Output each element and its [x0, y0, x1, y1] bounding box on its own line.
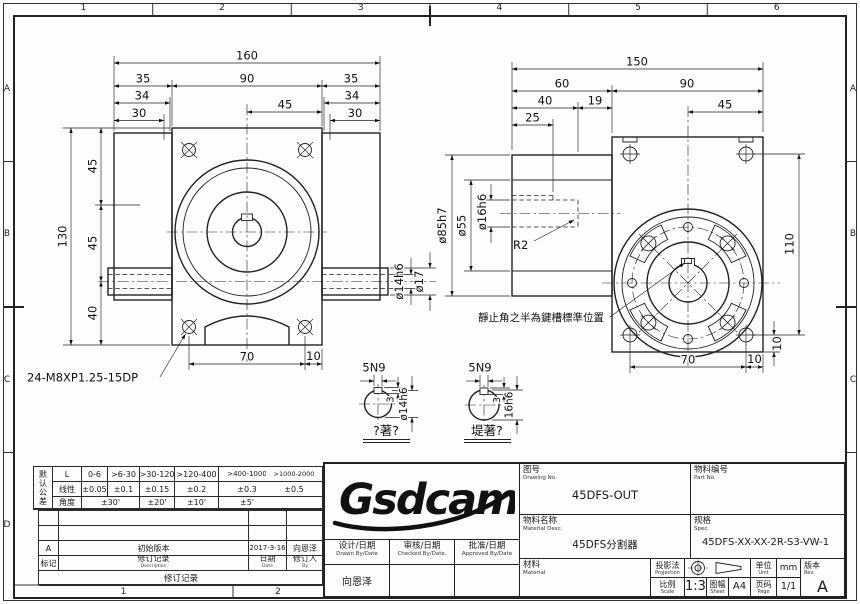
tol-h-4: >120-400 [175, 467, 219, 482]
rev-h-desc: 修订记录 Description [59, 556, 249, 571]
dim-60: 60 [555, 77, 570, 91]
spec-cell: 规格 Spec. 45DFS-XX-XX-2R-S3-VW-1 [691, 515, 844, 558]
material-cell: 材料 Material [520, 559, 651, 596]
revision-title: 修订记录 [39, 571, 324, 586]
dim-34l: 34 [135, 89, 150, 103]
approved-by-value [455, 565, 519, 596]
dim-30l: 30 [132, 106, 147, 120]
dim-30r: 30 [348, 106, 363, 120]
page-value: 1/1 [777, 578, 801, 597]
fillet-r2: R2 [513, 238, 528, 252]
zone-top-4: 4 [430, 1, 569, 15]
zone-strip-top: 1 2 3 4 5 6 [14, 1, 846, 15]
revision-table: A 初始版本 2017-3-16 向恩泽 标记 修订记录 Description… [38, 510, 323, 585]
dim-150: 150 [626, 55, 648, 69]
detail-input-shaft: 5N9 3 ø14h6 ?著? [359, 361, 418, 443]
tol-ang-3: ±10' [175, 497, 219, 509]
dim-110: 110 [783, 233, 797, 255]
dim-35r: 35 [344, 72, 359, 86]
sheet-label-cell: 图幅 Sheet [707, 578, 729, 597]
sheet-value: A4 [729, 578, 751, 597]
zone-strip-left: A B C D [1, 16, 13, 598]
dim-40s: 40 [538, 94, 553, 108]
tol-h-1: 0-6 [82, 467, 108, 482]
unit-label-cell: 单位 Unit [751, 559, 777, 578]
rev-entry-by: 向恩泽 [287, 541, 324, 556]
dim-25: 25 [525, 111, 540, 125]
rev-h-date: 日期 Date [249, 556, 287, 571]
thread-callout: 24-M8XP1.25-15DP [27, 371, 138, 385]
projection-symbol-icon [685, 559, 749, 577]
dim-19: 19 [588, 94, 603, 108]
tolerance-side-label: 默认公差 [34, 467, 53, 509]
dim-160: 160 [236, 49, 258, 63]
projection-label-cell: 投影法 Projection [651, 559, 685, 578]
dim-shaft-od: ø17 [412, 271, 426, 293]
dim-45b: 45 [86, 236, 100, 251]
dim-34r: 34 [345, 89, 360, 103]
dim-10-side: 10 [770, 336, 784, 351]
page-label-cell: 页码 Page [751, 578, 777, 597]
zone-top-2: 2 [153, 1, 292, 15]
dim-70: 70 [240, 350, 255, 364]
d2-depth: 3 [492, 397, 503, 403]
zone-right-d [847, 453, 859, 599]
dim-16h6: ø16h6 [475, 194, 489, 230]
tol-lin-3: ±0.15 [140, 482, 175, 497]
dim-55: ø55 [455, 215, 469, 237]
zone-top-5: 5 [569, 1, 708, 15]
zone-top-1: 1 [14, 1, 153, 15]
zone-top-3: 3 [291, 1, 430, 15]
rev-entry-desc: 初始版本 [59, 541, 249, 556]
zone-strip-bottom: 1 2 [14, 585, 323, 598]
tol-ang-5 [266, 497, 323, 509]
dim-90: 90 [240, 72, 255, 86]
zone-left-c: C [1, 307, 13, 453]
scale-label-cell: 比例 Scale [651, 578, 685, 597]
logo-text: Gsdcam [339, 475, 515, 525]
tol-h-2: >6-30 [108, 467, 140, 482]
dim-85h7: ø85h7 [435, 207, 449, 243]
dim-70s: 70 [681, 353, 696, 367]
zone-left-a: A [1, 16, 13, 162]
checked-by-value [390, 565, 455, 596]
drawing-no-cell: 图号 Drawing No. 45DFS-OUT [520, 464, 691, 514]
rev-cell: 版本 Rev. A [801, 559, 844, 596]
zone-strip-right: A B C [847, 16, 859, 598]
tol-h-6: >1000-2000 [266, 467, 323, 482]
rev-value: A [801, 577, 844, 596]
dim-130: 130 [56, 226, 70, 248]
dim-45s: 45 [718, 98, 733, 112]
zone-bottom-1: 1 [14, 585, 233, 598]
d1-bore: ø14h6 [398, 387, 410, 420]
side-view: 150 60 90 40 19 25 45 ø85h7 ø55 ø16h6 R2… [435, 55, 805, 374]
dim-35l: 35 [136, 72, 151, 86]
drawn-by-header: 设计/日期 Drawn By/Date [325, 540, 390, 564]
d1-key: 5N9 [362, 361, 385, 375]
d2-bore: 16h6 [504, 391, 516, 418]
scale-value: 1:3 [685, 578, 707, 597]
dim-45a: 45 [86, 159, 100, 174]
zone-left-d: D [1, 453, 13, 599]
spec-value: 45DFS-XX-XX-2R-S3-VW-1 [691, 537, 840, 548]
d1-depth: 3 [386, 396, 397, 402]
projection-symbol-cell [685, 559, 751, 578]
tol-ang-label: 角度 [53, 497, 82, 509]
title-block: Gsdcam 设计/日期 Drawn By/Date 审核/日期 Checked… [323, 462, 846, 598]
checked-by-header: 审核/日期 Checked By/Date. [390, 540, 455, 564]
zone-bottom-2: 2 [233, 585, 323, 598]
dim-10: 10 [306, 349, 321, 363]
tol-ang-1: ±30' [82, 497, 140, 509]
drawing-sheet: 160 35 90 35 34 34 45 30 30 130 45 45 40… [0, 0, 860, 604]
part-no-cell: 物料编号 Part No. [691, 464, 844, 514]
drawn-by-value: 向恩泽 [325, 565, 390, 596]
zone-top-6: 6 [707, 1, 846, 15]
dim-shaft-bore: ø14h6 [392, 263, 406, 299]
zone-left-b: B [1, 162, 13, 308]
tolerance-table-extra: >1000-2000 ±0.5 [266, 466, 323, 510]
rev-h-by: 修订人 By [287, 556, 324, 571]
material-desc-value: 45DFS分割器 [520, 537, 690, 552]
material-desc-cell: 物料名称 Material Desc. 45DFS分割器 [520, 515, 691, 558]
zone-right-c: C [847, 307, 859, 453]
tol-lin-4: ±0.2 [175, 482, 219, 497]
company-logo: Gsdcam [325, 464, 519, 540]
dim-90s: 90 [680, 77, 695, 91]
gsdcam-logo-graphic: Gsdcam [325, 464, 515, 536]
drawing-no-value: 45DFS-OUT [520, 488, 690, 502]
detail-output-bore: 5N9 3 16h6 堤著? [464, 361, 523, 443]
front-view: 160 35 90 35 34 34 45 30 30 130 45 45 40… [27, 49, 436, 385]
tol-h-l: L [53, 467, 82, 482]
rev-entry-mark: A [39, 541, 59, 556]
dim-10s: 10 [747, 352, 762, 366]
tol-lin-6: ±0.5 [266, 482, 323, 497]
d1-caption: ?著? [373, 423, 399, 438]
approved-by-header: 批准/日期 Approved By/Date [455, 540, 519, 564]
rev-entry-date: 2017-3-16 [249, 541, 287, 556]
d2-caption: 堤著? [471, 423, 503, 438]
zone-right-a: A [847, 16, 859, 162]
tol-lin-1: ±0.05 [82, 482, 108, 497]
rev-h-mark: 标记 [39, 556, 59, 571]
unit-value: mm [777, 559, 801, 578]
tol-lin-label: 线性 [53, 482, 82, 497]
tol-lin-2: ±0.1 [108, 482, 140, 497]
tol-h-3: >30-120 [140, 467, 175, 482]
tol-ang-2: ±20' [140, 497, 175, 509]
zone-right-b: B [847, 162, 859, 308]
dim-45-top: 45 [278, 98, 293, 112]
keyway-note: 靜止角之半為鍵槽標準位置 [478, 311, 604, 324]
d2-key: 5N9 [468, 361, 491, 375]
dim-40: 40 [86, 306, 100, 321]
